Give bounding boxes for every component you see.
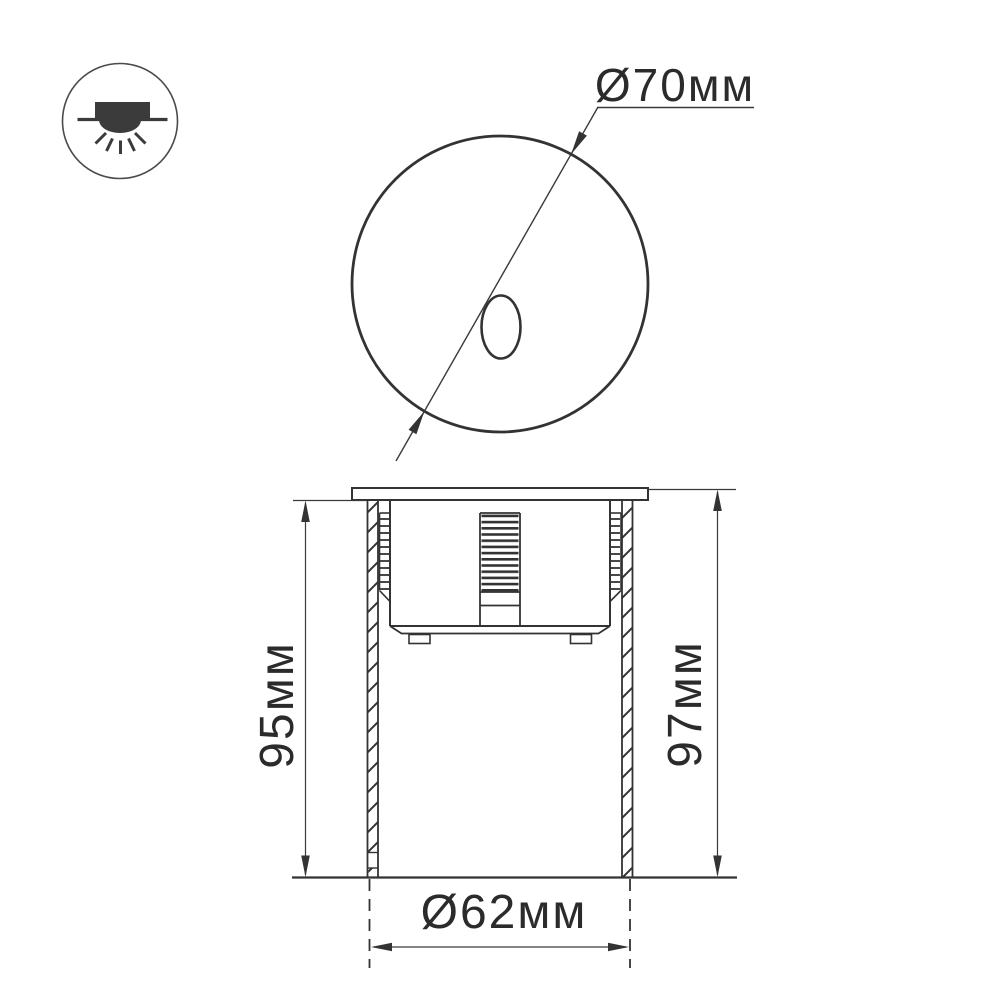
- front-diameter-label: Ø70мм: [595, 59, 755, 111]
- arrowhead-upper: [571, 131, 587, 154]
- diameter-dimension-line: [396, 107, 598, 461]
- luminaire-dimension-drawing: Ø70мм: [0, 0, 1000, 1000]
- left-foot: [409, 635, 430, 644]
- trim-flange: [352, 488, 648, 500]
- left-thread-strip: [380, 513, 391, 602]
- overall-height-dimension: 97мм: [649, 490, 736, 878]
- front-diameter-dimension: Ø70мм: [396, 59, 755, 461]
- icon-light-rays: [96, 133, 146, 154]
- recess-depth-dimension: 95мм: [251, 501, 366, 878]
- technical-drawing-page: Ø70мм: [0, 0, 1000, 1000]
- lamp-body: [380, 500, 622, 644]
- right-thread-strip: [610, 513, 621, 602]
- mounting-tube-left-wall: [368, 500, 379, 877]
- bottom-plate: [390, 626, 610, 634]
- recessed-downlight-icon: [63, 64, 178, 179]
- front-face-circle: [352, 136, 648, 432]
- body-diameter-label: Ø62мм: [421, 886, 588, 939]
- heatsink-column: [480, 513, 520, 626]
- right-foot: [571, 635, 592, 644]
- front-view: Ø70мм: [352, 59, 755, 461]
- recess-depth-label: 95мм: [251, 641, 304, 768]
- arrowhead-lower: [409, 411, 425, 434]
- light-aperture-ellipse: [482, 296, 521, 359]
- body-diameter-dimension: Ø62мм: [371, 886, 629, 951]
- overall-height-label: 97мм: [659, 640, 712, 767]
- icon-lamp-dome: [99, 120, 141, 133]
- mounting-tube-right-wall: [622, 500, 633, 877]
- icon-lamp-body: [95, 102, 150, 118]
- section-view: 95мм 97мм Ø62мм: [251, 488, 737, 968]
